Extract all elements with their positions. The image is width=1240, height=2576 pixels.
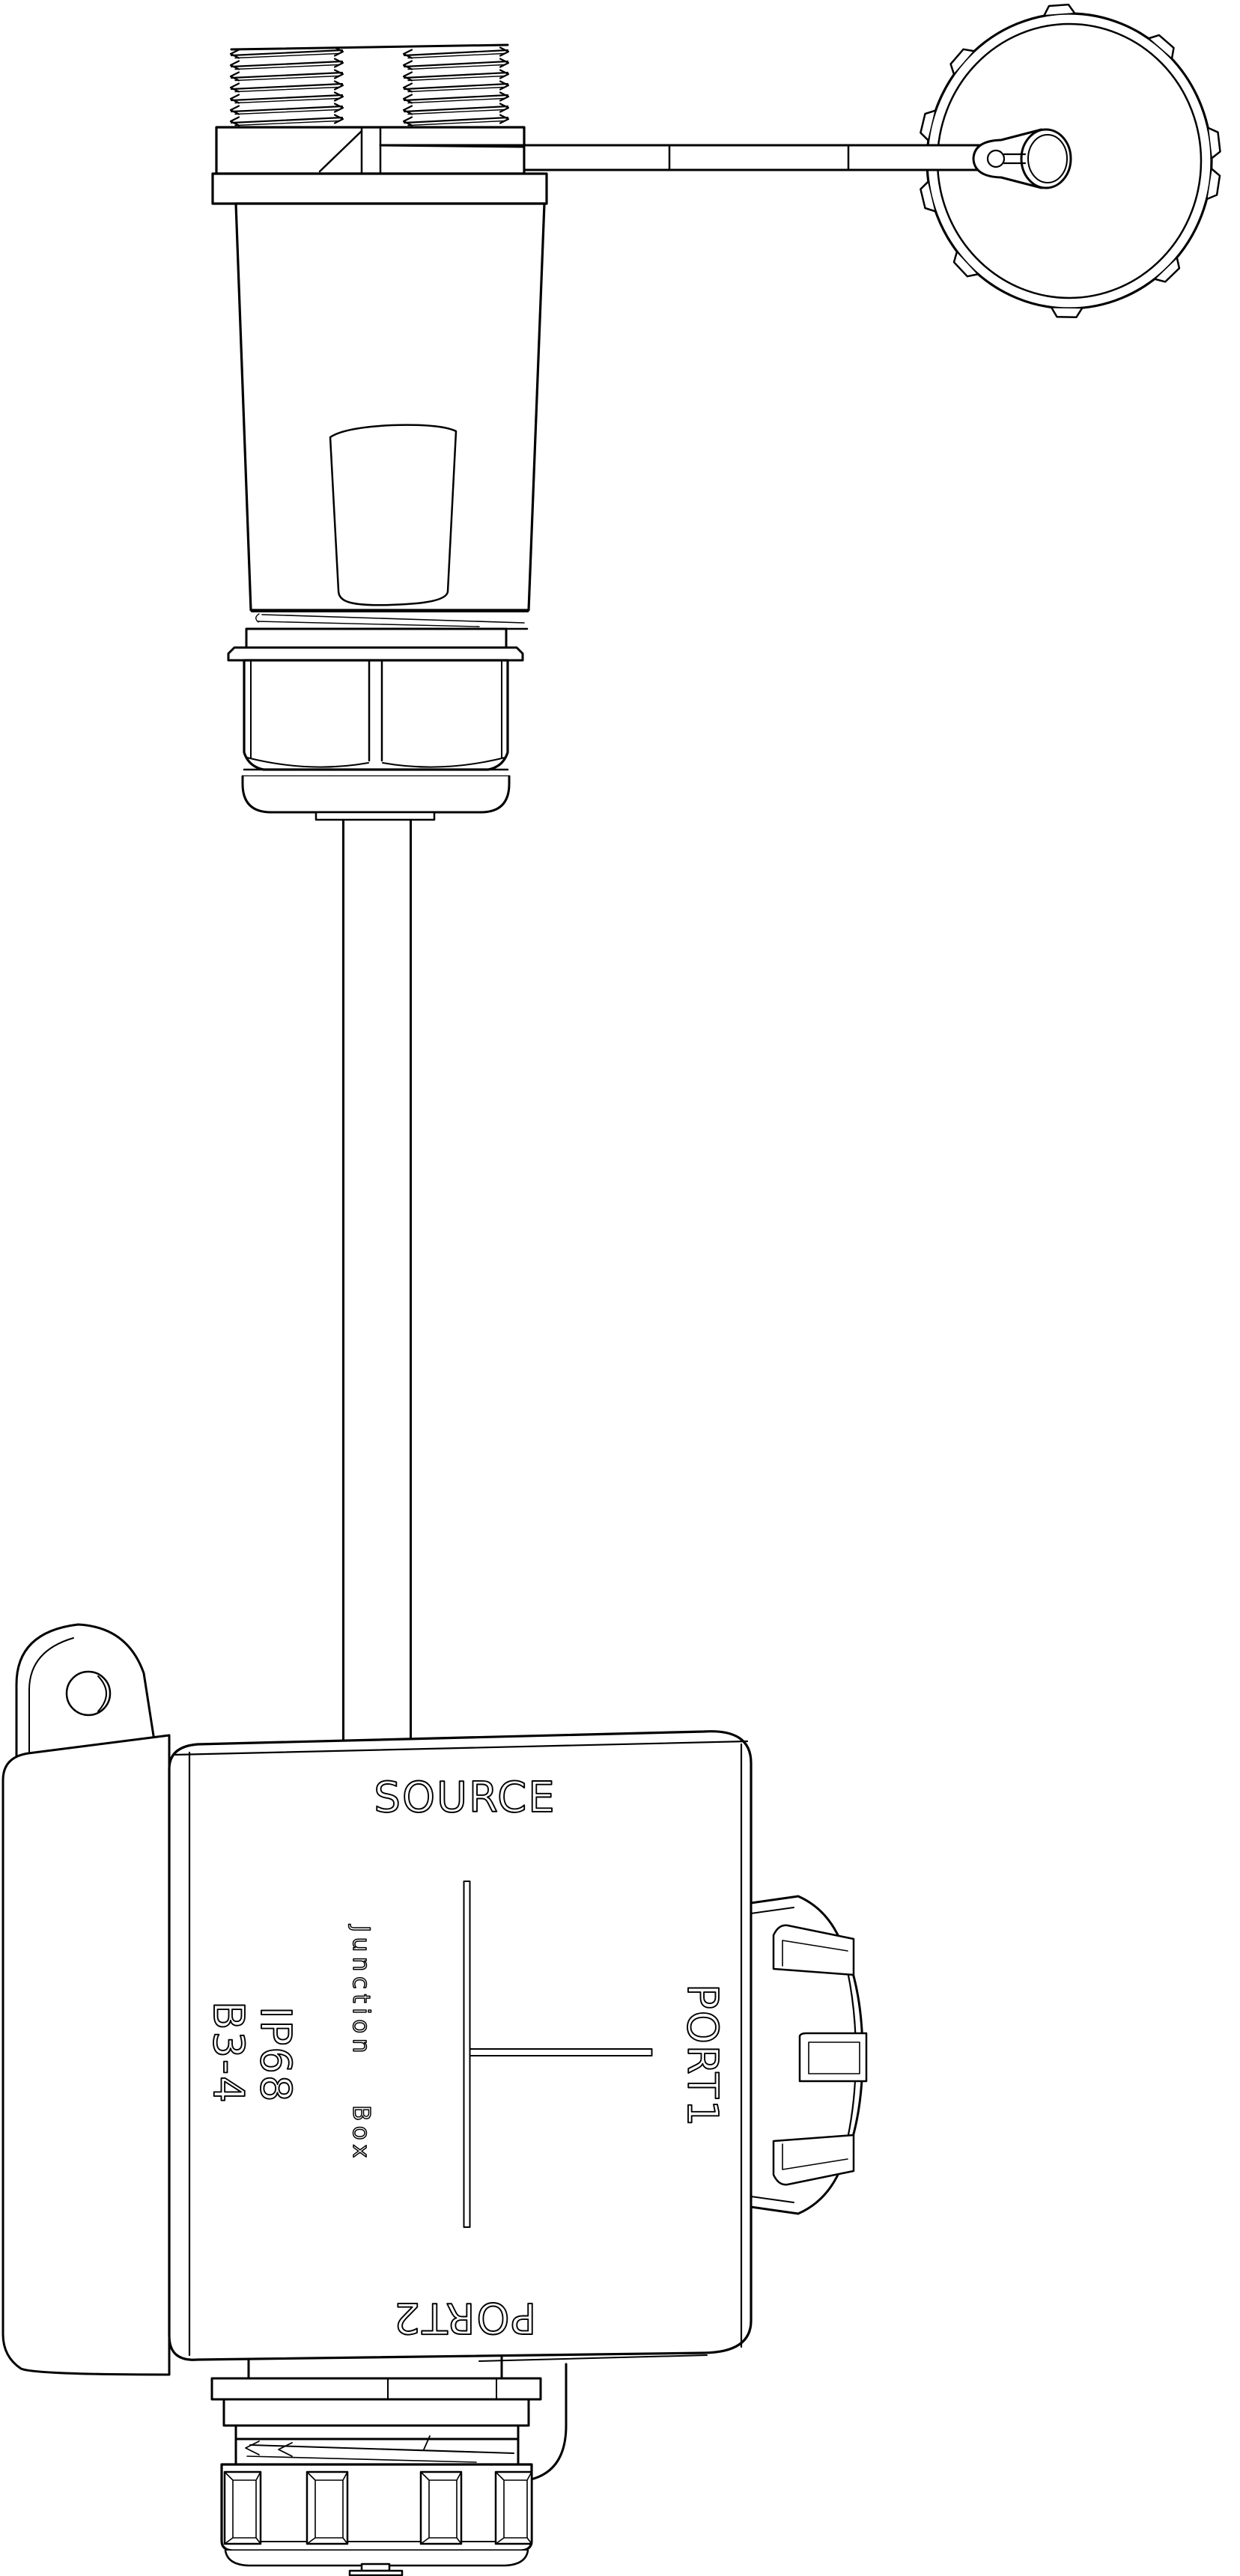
gland-band-c <box>236 2426 518 2439</box>
thread-crest <box>231 73 239 81</box>
label-junction: Junction <box>347 1924 374 2058</box>
connector-flange <box>213 174 547 204</box>
top-connector <box>213 45 547 820</box>
thread-crest <box>500 48 508 56</box>
thread-crest <box>231 118 239 126</box>
gland-lug <box>421 2472 461 2544</box>
thread-line <box>231 106 342 112</box>
main-cable <box>344 816 411 1750</box>
thread-crest <box>500 93 508 101</box>
technical-drawing-page: SOURCE Junction Box IP68 B3-4 PORT1 PORT… <box>0 0 1240 2576</box>
thread-line <box>231 95 342 100</box>
thread-crest <box>404 73 412 81</box>
thread-crest <box>404 50 412 58</box>
label-model: B3-4 <box>204 2001 252 2104</box>
thread-line <box>404 61 508 67</box>
thread-line <box>231 118 342 123</box>
thread-crest <box>404 61 412 70</box>
thread-crest <box>335 59 343 67</box>
thread-crest <box>500 104 508 112</box>
port1-nut <box>751 1896 866 2214</box>
label-box: Box <box>347 2105 374 2163</box>
label-port1: PORT1 <box>678 1984 726 2128</box>
thread-line <box>231 73 342 78</box>
thread-crest <box>335 115 343 124</box>
thread-crest <box>500 59 508 67</box>
thread-crest <box>500 82 508 90</box>
thread-stud <box>231 45 508 126</box>
gland-lug <box>225 2472 261 2544</box>
label-port2: PORT2 <box>392 2293 537 2342</box>
thread-crest <box>500 70 508 79</box>
thread-line <box>404 50 508 55</box>
label-ip-rating: IP68 <box>251 2006 300 2104</box>
lug-hole <box>67 1672 110 1715</box>
coupling-collar <box>216 127 524 174</box>
thread-crest <box>335 70 343 79</box>
gland-band-b <box>224 2399 529 2426</box>
thread-crest <box>335 48 343 56</box>
thread-line <box>404 84 508 89</box>
thread-crest <box>404 118 412 126</box>
gland-nut-bottom <box>222 2464 532 2566</box>
seal-ring <box>252 612 528 629</box>
thread-crest <box>335 104 343 112</box>
thread-crest <box>404 106 412 115</box>
thread-line <box>404 95 508 100</box>
thread-crest <box>335 82 343 90</box>
thread-crest <box>231 84 239 92</box>
cable-exit-step <box>316 812 434 820</box>
bottom-stub-neck <box>362 2564 389 2571</box>
gland-band-a <box>212 2378 541 2399</box>
thread-crest <box>404 84 412 92</box>
hex-nut <box>244 660 508 770</box>
thread-crest <box>500 115 508 124</box>
thread-line <box>404 73 508 78</box>
thread-line <box>231 61 342 67</box>
cap-lug <box>1052 308 1082 317</box>
bottom-gland <box>212 2355 541 2575</box>
thread-crest <box>231 106 239 115</box>
label-source: SOURCE <box>374 1773 556 1822</box>
body-window <box>330 425 456 606</box>
bottom-stub-foot <box>350 2571 402 2575</box>
thread-line <box>231 50 342 55</box>
cable-assembly-drawing: SOURCE Junction Box IP68 B3-4 PORT1 PORT… <box>0 0 1240 2576</box>
thread-line <box>404 106 508 112</box>
gland-flange-wide <box>228 648 523 660</box>
thread-crest <box>231 50 239 58</box>
gland-lug <box>496 2472 532 2544</box>
gland-cup <box>243 776 509 820</box>
thread-crest <box>404 95 412 103</box>
junction-box-backplate <box>3 1735 169 2375</box>
gland-flange-upper <box>246 629 506 648</box>
junction-box: SOURCE Junction Box IP68 B3-4 PORT1 PORT… <box>169 1732 751 2361</box>
gland-lug <box>307 2472 347 2544</box>
thread-crest <box>231 95 239 103</box>
thread-line <box>404 118 508 123</box>
thread-crest <box>231 61 239 70</box>
thread-crest <box>335 93 343 101</box>
thread-line <box>231 84 342 89</box>
